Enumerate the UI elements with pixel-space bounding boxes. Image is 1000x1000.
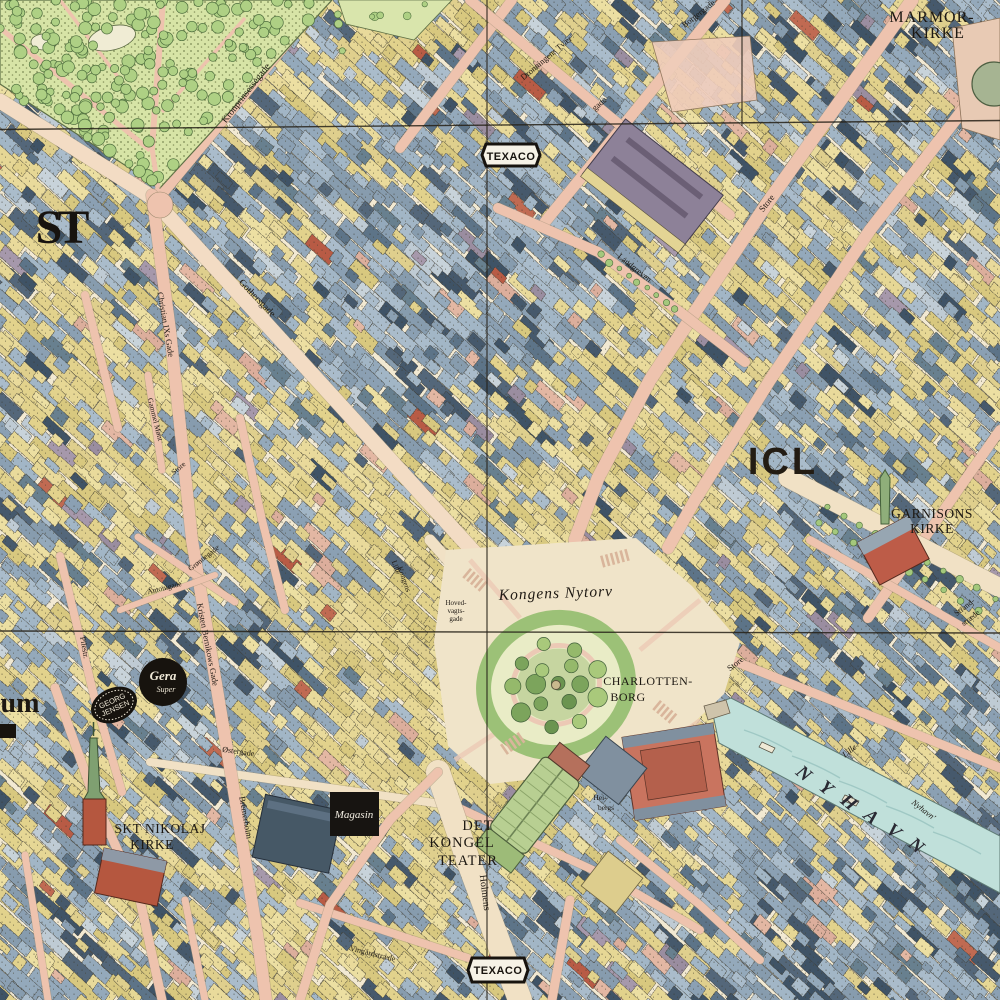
svg-text:CHARLOTTEN-: CHARLOTTEN- [603,674,693,688]
svg-text:ICL: ICL [748,441,818,483]
svg-text:GARNISONS: GARNISONS [891,506,973,521]
svg-text:MARMOR-: MARMOR- [889,9,974,26]
svg-text:TEATER: TEATER [438,853,498,869]
svg-text:KIRKE: KIRKE [911,25,965,42]
svg-text:vagts-: vagts- [447,607,465,615]
svg-text:KONGEL: KONGEL [429,835,495,851]
svg-text:Hoved-: Hoved- [446,599,468,607]
svg-text:KIRKE: KIRKE [130,837,174,852]
svg-text:KIRKE: KIRKE [910,521,954,536]
svg-text:ST: ST [36,201,90,254]
svg-text:Gera: Gera [150,668,177,683]
svg-text:Magasin: Magasin [334,809,374,821]
svg-text:Super: Super [157,685,177,694]
svg-text:TEXACO: TEXACO [487,151,536,163]
svg-text:SKT NIKOLAJ: SKT NIKOLAJ [114,821,205,836]
svg-text:gade: gade [449,615,462,623]
svg-text:TEXACO: TEXACO [474,965,523,977]
svg-text:Hei-: Hei- [593,793,607,802]
svg-text:DET: DET [462,818,493,834]
svg-text:bergs: bergs [598,803,614,812]
svg-text:BORG: BORG [610,690,645,704]
svg-text:um: um [1,688,40,719]
